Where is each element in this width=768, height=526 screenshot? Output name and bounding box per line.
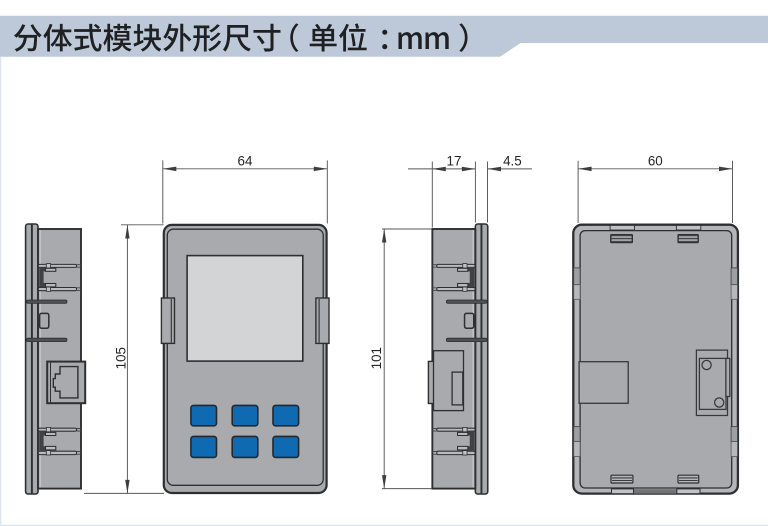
svg-text:105: 105 (113, 347, 128, 369)
svg-text:17: 17 (447, 153, 462, 168)
svg-text:64: 64 (238, 153, 253, 168)
svg-text:4.5: 4.5 (503, 153, 522, 168)
svg-text:101: 101 (369, 347, 384, 369)
svg-text:60: 60 (648, 153, 663, 168)
